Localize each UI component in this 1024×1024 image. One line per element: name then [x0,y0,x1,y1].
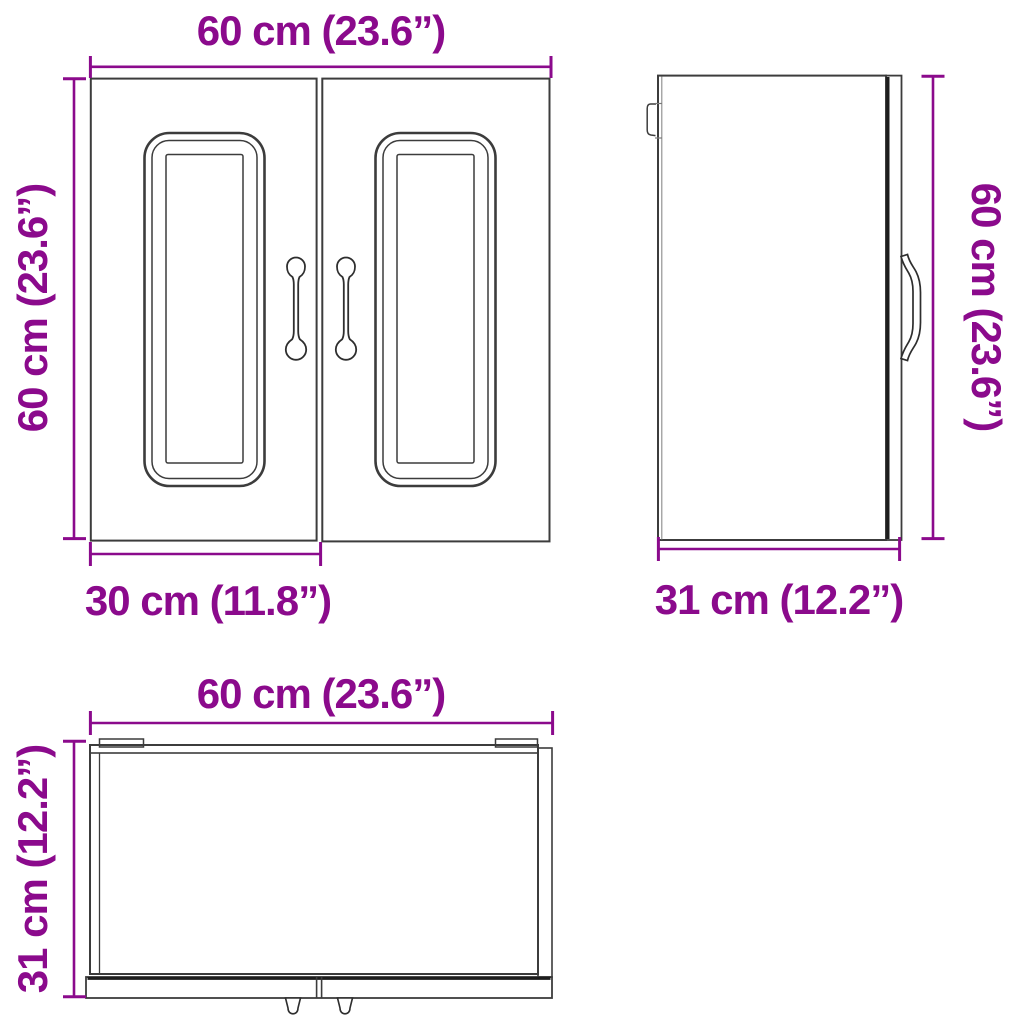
front-left-door [91,79,317,541]
side-height-label: 60 cm (23.6”) [965,183,1007,431]
cabinet-dimension-diagram: 60 cm (23.6”) 60 cm (23.6”) 30 cm (11.8”… [0,0,1024,1024]
top-back-panel-strip [90,745,538,753]
side-view-drawing [647,76,920,540]
door-panel-middle-frame [152,141,257,479]
front-view-drawing [91,79,550,542]
front-door-handle-right [336,258,356,360]
side-wall-bracket [647,104,656,136]
top-view-drawing [86,739,552,1014]
front-width-label: 60 cm (23.6”) [197,10,445,52]
side-door-handle [901,255,921,361]
top-width-label: 60 cm (23.6”) [197,673,445,715]
front-door-panel-left [145,133,265,486]
front-door-panel-right [376,133,496,486]
front-door-handle-left [286,258,306,360]
top-handle-knob-left [286,998,301,1014]
side-depth-label: 31 cm (12.2”) [655,579,903,621]
front-height-label: 60 cm (23.6”) [12,184,54,432]
side-body [658,76,886,540]
top-door-front-strip [86,977,552,998]
top-depth-label: 31 cm (12.2”) [12,745,54,993]
technical-drawing [0,0,1024,1024]
top-body [90,745,538,974]
door-panel-glass [166,155,243,464]
front-door-width-label: 30 cm (11.8”) [85,580,331,622]
front-right-door [322,79,549,542]
top-right-side-strip [538,748,552,977]
dimension-lines [63,56,945,997]
door-panel-outer-frame [145,133,265,486]
top-handle-knob-right [338,998,353,1014]
